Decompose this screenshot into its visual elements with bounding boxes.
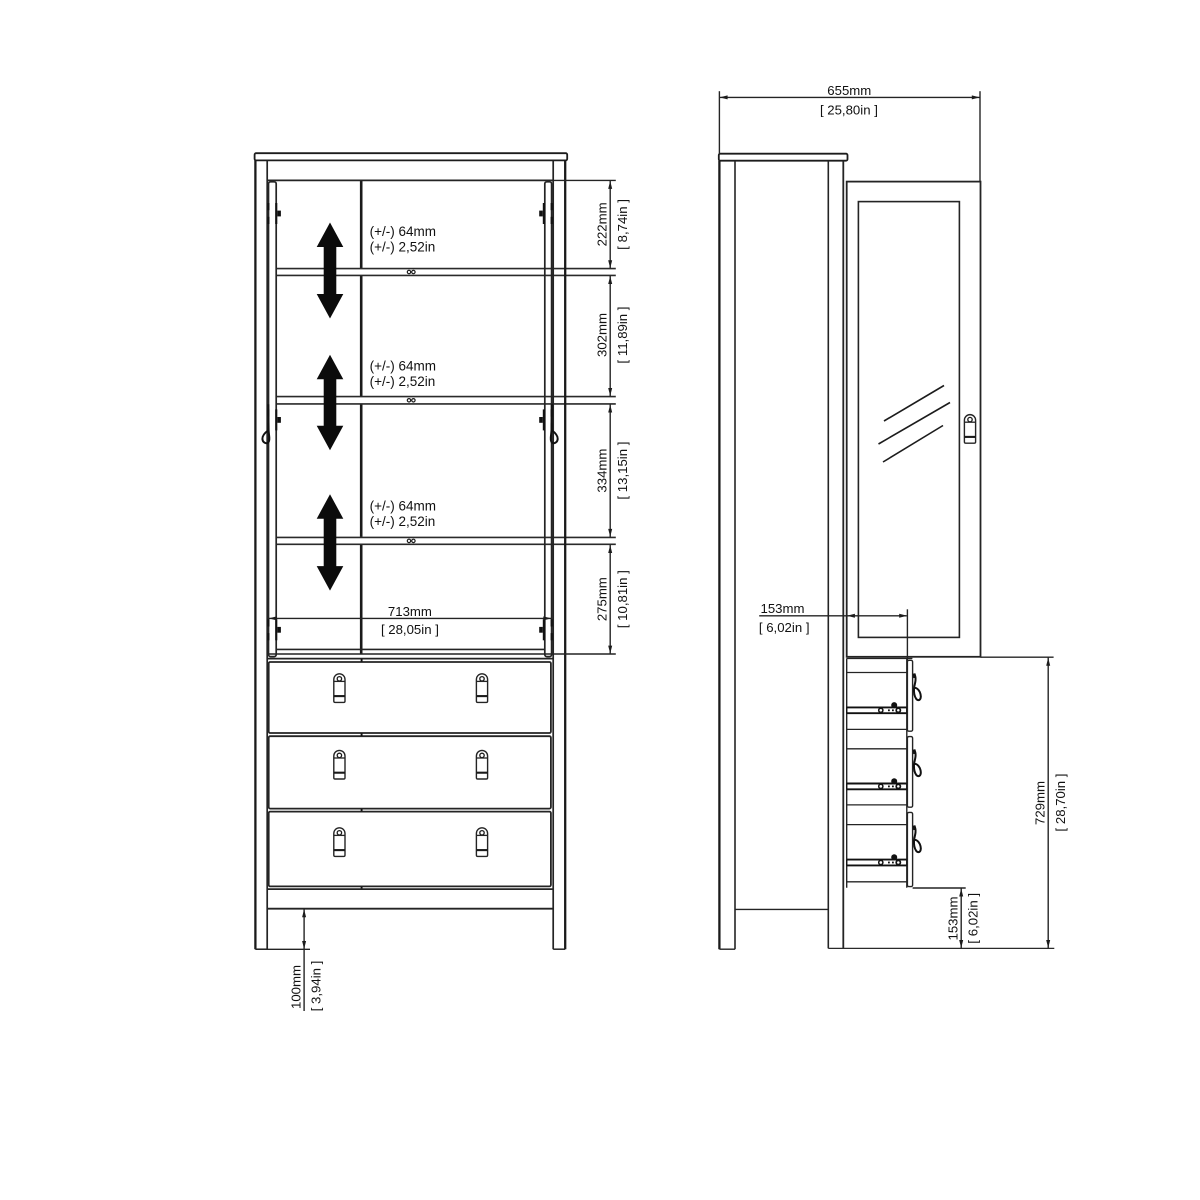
svg-text:[ 6,02in ]: [ 6,02in ] (965, 893, 980, 944)
svg-text:(+/-) 64mm: (+/-) 64mm (370, 224, 436, 239)
svg-text:(+/-) 64mm: (+/-) 64mm (370, 358, 436, 373)
svg-text:[ 28,05in ]: [ 28,05in ] (381, 622, 439, 637)
svg-text:[ 6,02in ]: [ 6,02in ] (759, 620, 810, 635)
svg-text:222mm: 222mm (595, 202, 610, 246)
svg-text:[ 3,94in ]: [ 3,94in ] (309, 961, 324, 1012)
svg-text:[ 28,70in ]: [ 28,70in ] (1053, 774, 1068, 832)
svg-text:334mm: 334mm (595, 449, 610, 493)
svg-text:153mm: 153mm (946, 897, 961, 941)
svg-text:275mm: 275mm (595, 577, 610, 621)
svg-text:(+/-) 2,52in: (+/-) 2,52in (370, 374, 436, 389)
svg-text:[ 10,81in ]: [ 10,81in ] (615, 570, 630, 628)
svg-text:100mm: 100mm (289, 965, 304, 1009)
svg-text:655mm: 655mm (827, 83, 871, 98)
svg-text:(+/-) 2,52in: (+/-) 2,52in (370, 240, 436, 255)
svg-text:302mm: 302mm (595, 313, 610, 357)
svg-text:713mm: 713mm (388, 604, 432, 619)
svg-text:[ 8,74in ]: [ 8,74in ] (615, 199, 630, 250)
svg-text:[ 13,15in ]: [ 13,15in ] (615, 442, 630, 500)
svg-text:729mm: 729mm (1033, 781, 1048, 825)
svg-text:(+/-) 2,52in: (+/-) 2,52in (370, 514, 436, 529)
svg-text:[ 25,80in ]: [ 25,80in ] (820, 102, 878, 117)
svg-text:153mm: 153mm (761, 601, 805, 616)
svg-text:[ 11,89in ]: [ 11,89in ] (615, 307, 630, 364)
svg-text:(+/-) 64mm: (+/-) 64mm (370, 499, 436, 514)
